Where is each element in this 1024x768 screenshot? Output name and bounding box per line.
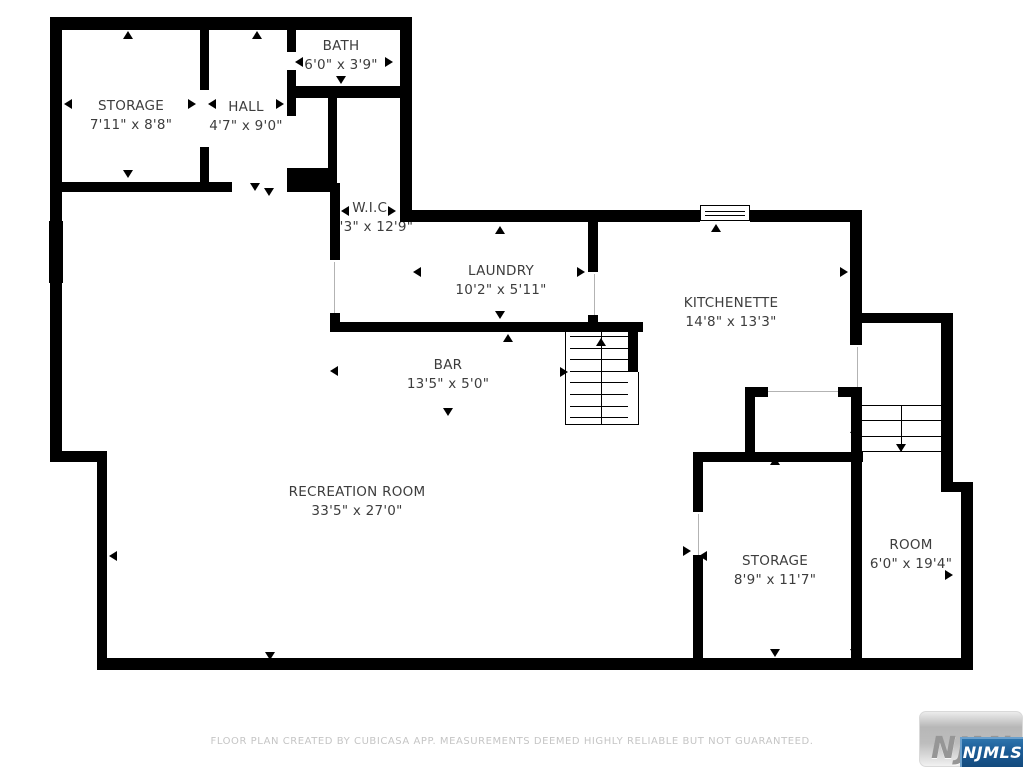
room-dims: 7'11" x 8'8" bbox=[90, 116, 172, 135]
room-name: RECREATION ROOM bbox=[289, 483, 426, 502]
measurement-arrow bbox=[385, 57, 393, 67]
wall-segment bbox=[287, 168, 333, 182]
njmls-logo: NJMLS NJMLS bbox=[919, 711, 1023, 767]
wall-segment bbox=[328, 98, 337, 183]
measurement-arrow bbox=[495, 311, 505, 319]
measurement-arrow bbox=[295, 57, 303, 67]
wall-segment bbox=[745, 387, 768, 397]
room-dims: 10'2" x 5'11" bbox=[455, 281, 546, 300]
measurement-arrow bbox=[413, 267, 421, 277]
room-label-storage-upper: STORAGE 7'11" x 8'8" bbox=[90, 97, 172, 135]
room-dims: 4'7" x 9'0" bbox=[209, 117, 283, 136]
room-label-hall: HALL 4'7" x 9'0" bbox=[209, 98, 283, 136]
room-label-laundry: LAUNDRY 10'2" x 5'11" bbox=[455, 262, 546, 300]
stair-line bbox=[570, 417, 628, 418]
wall-segment bbox=[287, 30, 296, 52]
measurement-arrow bbox=[840, 267, 848, 277]
wall-segment bbox=[961, 482, 973, 670]
stair-line bbox=[570, 359, 628, 360]
window-symbol-top bbox=[700, 205, 750, 221]
measurement-arrow bbox=[265, 652, 275, 660]
wall-segment bbox=[330, 322, 643, 332]
measurement-arrow bbox=[850, 649, 860, 657]
stairs-down-arrow bbox=[896, 444, 906, 452]
wall-segment bbox=[200, 147, 209, 182]
room-label-room: ROOM 6'0" x 19'4" bbox=[870, 536, 952, 574]
measurement-arrow bbox=[850, 425, 860, 433]
measurement-arrow bbox=[109, 551, 117, 561]
measurement-arrow bbox=[770, 457, 780, 465]
room-dims: 33'5" x 27'0" bbox=[289, 502, 426, 521]
door-opening-line bbox=[857, 347, 858, 387]
measurement-arrow bbox=[683, 546, 691, 556]
stair-line bbox=[570, 394, 628, 395]
stair-line bbox=[565, 424, 639, 425]
wall-segment bbox=[287, 86, 412, 98]
measurement-arrow bbox=[495, 226, 505, 234]
stair-line bbox=[570, 406, 628, 407]
room-name: LAUNDRY bbox=[455, 262, 546, 281]
measurement-arrow bbox=[264, 188, 274, 196]
room-name: STORAGE bbox=[90, 97, 172, 116]
door-opening-line bbox=[698, 514, 699, 555]
room-dims: 6'0" x 19'4" bbox=[870, 555, 952, 574]
room-label-storage-lower: STORAGE 8'9" x 11'7" bbox=[734, 552, 816, 590]
wall-segment bbox=[287, 70, 296, 116]
room-label-bar: BAR 13'5" x 5'0" bbox=[407, 356, 489, 394]
room-dims: 6'0" x 3'9" bbox=[304, 56, 378, 75]
measurement-arrow bbox=[443, 408, 453, 416]
measurement-arrow bbox=[64, 99, 72, 109]
room-dims: 14'8" x 13'3" bbox=[684, 313, 779, 332]
wall-segment bbox=[850, 313, 953, 323]
door-opening-line bbox=[594, 274, 595, 315]
room-name: STORAGE bbox=[734, 552, 816, 571]
measurement-arrow bbox=[208, 99, 216, 109]
measurement-arrow bbox=[699, 551, 707, 561]
stair-line bbox=[570, 371, 628, 372]
measurement-arrow bbox=[388, 206, 396, 216]
measurement-arrow bbox=[330, 366, 338, 376]
room-dims: 8'9" x 11'7" bbox=[734, 571, 816, 590]
wall-segment bbox=[850, 210, 862, 345]
measurement-arrow bbox=[341, 206, 349, 216]
room-name: ROOM bbox=[870, 536, 952, 555]
wall-segment bbox=[941, 313, 953, 492]
njmls-logo-badge: NJMLS bbox=[960, 737, 1023, 767]
wall-segment bbox=[400, 210, 700, 222]
door-opening-line bbox=[768, 391, 838, 392]
room-name: KITCHENETTE bbox=[684, 294, 779, 313]
stair-line bbox=[565, 330, 566, 425]
room-label-recreation-room: RECREATION ROOM 33'5" x 27'0" bbox=[289, 483, 426, 521]
stair-line bbox=[570, 348, 628, 349]
wall-segment bbox=[588, 220, 598, 272]
wall-segment bbox=[97, 451, 107, 668]
stair-line bbox=[570, 336, 628, 337]
room-label-kitchenette: KITCHENETTE 14'8" x 13'3" bbox=[684, 294, 779, 332]
floor-plan-image: STORAGE 7'11" x 8'8" HALL 4'7" x 9'0" BA… bbox=[0, 0, 1024, 768]
window-glass bbox=[705, 215, 745, 216]
room-dims: 13'5" x 5'0" bbox=[407, 375, 489, 394]
wall-segment bbox=[50, 182, 232, 192]
measurement-arrow bbox=[250, 183, 260, 191]
wall-segment bbox=[400, 17, 412, 220]
measurement-arrow bbox=[945, 570, 953, 580]
njmls-badge-text: NJMLS bbox=[963, 743, 1022, 762]
wall-segment bbox=[50, 451, 107, 462]
measurement-arrow bbox=[123, 31, 133, 39]
footer-disclaimer: FLOOR PLAN CREATED BY CUBICASA APP. MEAS… bbox=[0, 736, 1024, 747]
stairs-up-arrow bbox=[596, 338, 606, 346]
measurement-arrow bbox=[252, 31, 262, 39]
room-label-bath: BATH 6'0" x 3'9" bbox=[304, 37, 378, 75]
wall-segment bbox=[628, 322, 638, 372]
measurement-arrow bbox=[503, 334, 513, 342]
wall-segment bbox=[50, 17, 62, 462]
room-name: HALL bbox=[209, 98, 283, 117]
measurement-arrow bbox=[770, 649, 780, 657]
measurement-arrow bbox=[560, 367, 568, 377]
wall-segment bbox=[693, 452, 703, 512]
measurement-arrow bbox=[336, 76, 346, 84]
measurement-arrow bbox=[711, 224, 721, 232]
wall-segment bbox=[97, 658, 973, 670]
window-glass bbox=[705, 211, 745, 212]
measurement-arrow bbox=[276, 99, 284, 109]
wall-segment bbox=[693, 555, 703, 668]
room-name: BAR bbox=[407, 356, 489, 375]
wall-segment bbox=[50, 17, 412, 30]
measurement-arrow bbox=[188, 99, 196, 109]
stair-line bbox=[638, 372, 639, 425]
measurement-arrow bbox=[577, 267, 585, 277]
measurement-arrow bbox=[123, 170, 133, 178]
wall-segment bbox=[330, 183, 340, 260]
wall-segment bbox=[750, 210, 862, 222]
stair-line bbox=[570, 382, 628, 383]
room-name: BATH bbox=[304, 37, 378, 56]
door-opening-line bbox=[334, 262, 335, 313]
wall-segment bbox=[200, 30, 209, 90]
